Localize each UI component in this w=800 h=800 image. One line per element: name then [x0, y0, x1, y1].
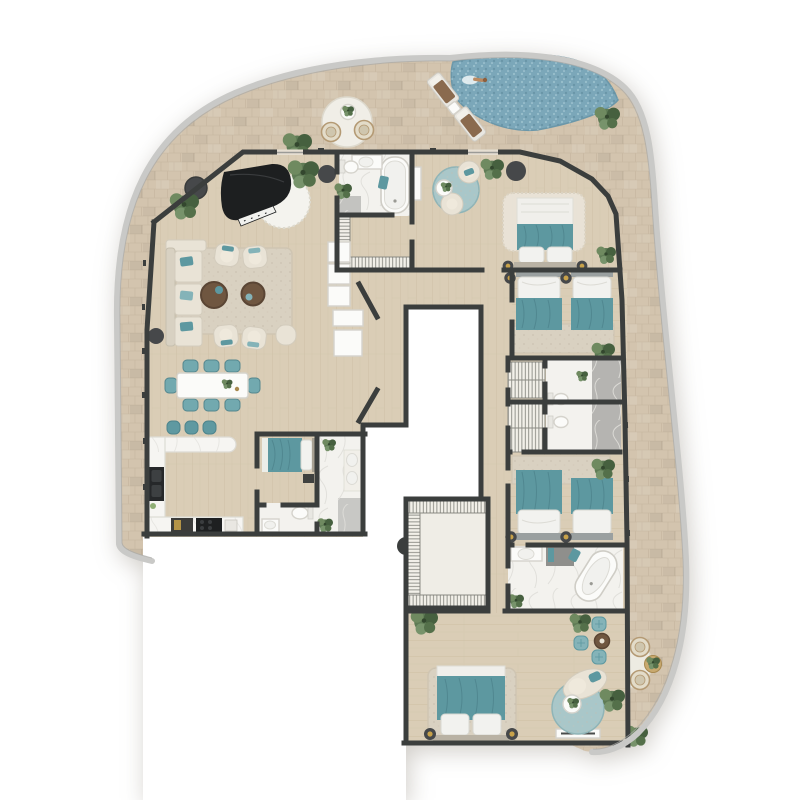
table-decor	[235, 387, 239, 391]
floor-plan-canvas	[0, 0, 800, 800]
sink-basin	[347, 472, 358, 485]
shower-towel	[548, 548, 554, 562]
bedside-lamp	[424, 728, 436, 740]
oven-unit	[171, 518, 193, 532]
bath-drain	[393, 199, 396, 202]
bed-pillow	[473, 714, 501, 735]
dining-table	[177, 373, 248, 398]
sink-basin	[359, 157, 373, 167]
twin-bed	[516, 271, 562, 330]
cooktop	[196, 518, 237, 532]
bed-sheet-fold	[262, 438, 269, 472]
outdoor-chair	[355, 121, 374, 140]
chopping-board	[225, 520, 237, 531]
kitchen-plant	[150, 503, 156, 509]
terrace-seating-north	[322, 97, 374, 147]
pouf	[276, 325, 296, 345]
bar-stools	[167, 421, 216, 434]
bed-pillow	[519, 247, 544, 263]
floor-plan-svg	[0, 0, 800, 800]
toilet-tank	[548, 416, 553, 428]
outdoor-chair	[631, 671, 650, 690]
outdoor-chair	[322, 123, 341, 142]
outdoor-chair	[631, 638, 650, 657]
twin-bed	[571, 271, 613, 330]
twin-bedroom-south	[505, 456, 615, 543]
entry-cabinet	[334, 330, 362, 356]
tv-cabinet	[328, 286, 350, 306]
twin-bedroom-north	[504, 271, 615, 364]
nightstand	[303, 474, 314, 483]
bed-pillow	[441, 714, 469, 735]
staff-bed-pillow	[301, 440, 312, 470]
twin-bed	[571, 478, 613, 540]
toilet-tank	[308, 507, 313, 519]
bedside-lamp	[560, 531, 571, 542]
entry-cabinet	[333, 310, 363, 326]
apartment-plan	[100, 40, 700, 800]
sink-basin	[265, 521, 276, 529]
sink-basin	[347, 454, 358, 467]
sink-basin	[518, 549, 534, 560]
toilet	[554, 417, 568, 428]
bedside-lamp	[560, 272, 571, 283]
toilet	[292, 507, 308, 519]
planter	[148, 328, 164, 344]
round-side-table	[506, 161, 526, 181]
bedside-lamp	[506, 728, 518, 740]
toilet	[344, 161, 358, 173]
twin-bed	[516, 470, 562, 540]
round-side-table	[318, 165, 336, 183]
sectional-sofa	[166, 240, 206, 346]
bed-blanket	[517, 224, 573, 250]
bed-pillow	[547, 247, 572, 263]
